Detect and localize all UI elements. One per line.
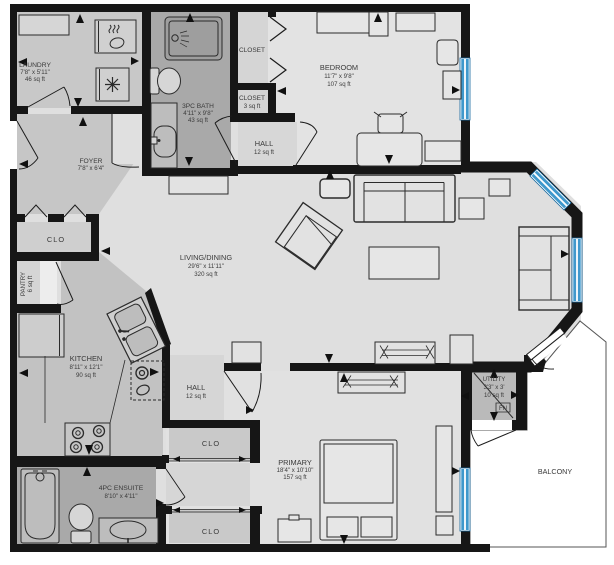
svg-text:6 sq ft: 6 sq ft bbox=[27, 275, 34, 292]
svg-text:HALL: HALL bbox=[255, 139, 274, 148]
svg-text:PRIMARY: PRIMARY bbox=[278, 458, 312, 467]
svg-text:43 sq ft: 43 sq ft bbox=[188, 117, 208, 124]
svg-text:BEDROOM: BEDROOM bbox=[320, 63, 358, 72]
svg-text:90 sq ft: 90 sq ft bbox=[76, 372, 96, 379]
svg-text:LAUNDRY: LAUNDRY bbox=[19, 62, 51, 69]
svg-text:46 sq ft: 46 sq ft bbox=[25, 76, 45, 83]
svg-text:CLO: CLO bbox=[202, 527, 220, 536]
svg-text:7'8" x 6'4": 7'8" x 6'4" bbox=[78, 165, 105, 172]
svg-text:PANTRY: PANTRY bbox=[20, 272, 27, 296]
svg-text:4PC ENSUITE: 4PC ENSUITE bbox=[99, 485, 144, 492]
svg-text:18'4" x 10'10": 18'4" x 10'10" bbox=[277, 467, 314, 474]
svg-text:8'10" x 4'11": 8'10" x 4'11" bbox=[105, 493, 138, 500]
svg-text:12 sq ft: 12 sq ft bbox=[186, 393, 206, 400]
svg-text:8'11" x 12'1": 8'11" x 12'1" bbox=[70, 364, 103, 371]
svg-text:7'8" x 5'11": 7'8" x 5'11" bbox=[20, 69, 50, 76]
svg-text:FOYER: FOYER bbox=[79, 158, 102, 165]
svg-text:157 sq ft: 157 sq ft bbox=[283, 474, 307, 481]
svg-text:12 sq ft: 12 sq ft bbox=[254, 149, 274, 156]
svg-text:FN: FN bbox=[499, 405, 507, 412]
svg-text:CLOSET: CLOSET bbox=[239, 95, 265, 102]
svg-text:107 sq ft: 107 sq ft bbox=[327, 81, 351, 88]
svg-text:HALL: HALL bbox=[187, 383, 206, 392]
svg-text:KITCHEN: KITCHEN bbox=[70, 354, 102, 363]
svg-text:BALCONY: BALCONY bbox=[538, 467, 573, 476]
svg-text:UTILITY: UTILITY bbox=[483, 376, 506, 383]
svg-text:320 sq ft: 320 sq ft bbox=[194, 271, 218, 278]
svg-text:3PC BATH: 3PC BATH bbox=[182, 103, 214, 110]
svg-text:4'11" x 9'8": 4'11" x 9'8" bbox=[183, 110, 213, 117]
svg-text:29'6" x 11'11": 29'6" x 11'11" bbox=[188, 263, 224, 270]
svg-text:CLOSET: CLOSET bbox=[239, 47, 265, 54]
svg-text:CLO: CLO bbox=[47, 235, 65, 244]
svg-text:LIVING/DINING: LIVING/DINING bbox=[180, 253, 232, 262]
svg-text:10 sq ft: 10 sq ft bbox=[484, 392, 504, 399]
svg-text:3'3" x 3': 3'3" x 3' bbox=[483, 384, 504, 391]
svg-text:CLO: CLO bbox=[202, 439, 220, 448]
svg-text:11'7" x 9'8": 11'7" x 9'8" bbox=[324, 73, 354, 80]
svg-text:3 sq ft: 3 sq ft bbox=[244, 103, 261, 110]
